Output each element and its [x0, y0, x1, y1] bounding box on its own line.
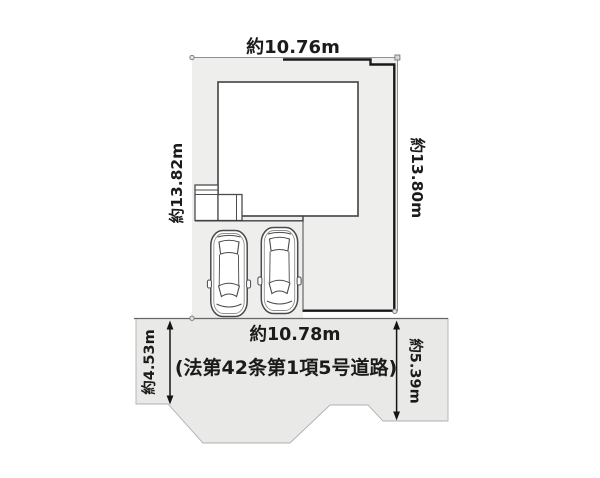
dimension-right-depth: 約13.80m	[408, 138, 427, 219]
site-plan-drawing: 約10.76m 約10.78m 約13.82m 約13.80m 約4.53m 約…	[0, 0, 600, 478]
survey-point-bottom-left	[190, 316, 194, 320]
car-1	[207, 231, 250, 317]
dimension-road-width-right: 約5.39m	[407, 338, 425, 403]
dimension-frontage: 約10.78m	[249, 324, 340, 345]
car-2	[258, 228, 301, 314]
dimension-top-width: 約10.76m	[246, 36, 340, 58]
road-name-label: (法第42条第1項5号道路)	[175, 356, 397, 379]
dimension-road-width-left: 約4.53m	[140, 329, 158, 394]
survey-point-top-right	[395, 55, 400, 60]
dimension-left-depth: 約13.82m	[167, 143, 186, 224]
survey-point-top-left	[190, 55, 194, 59]
site-plan-canvas: 約10.76m 約10.78m 約13.82m 約13.80m 約4.53m 約…	[0, 0, 600, 478]
survey-point-bottom-right	[393, 309, 397, 313]
